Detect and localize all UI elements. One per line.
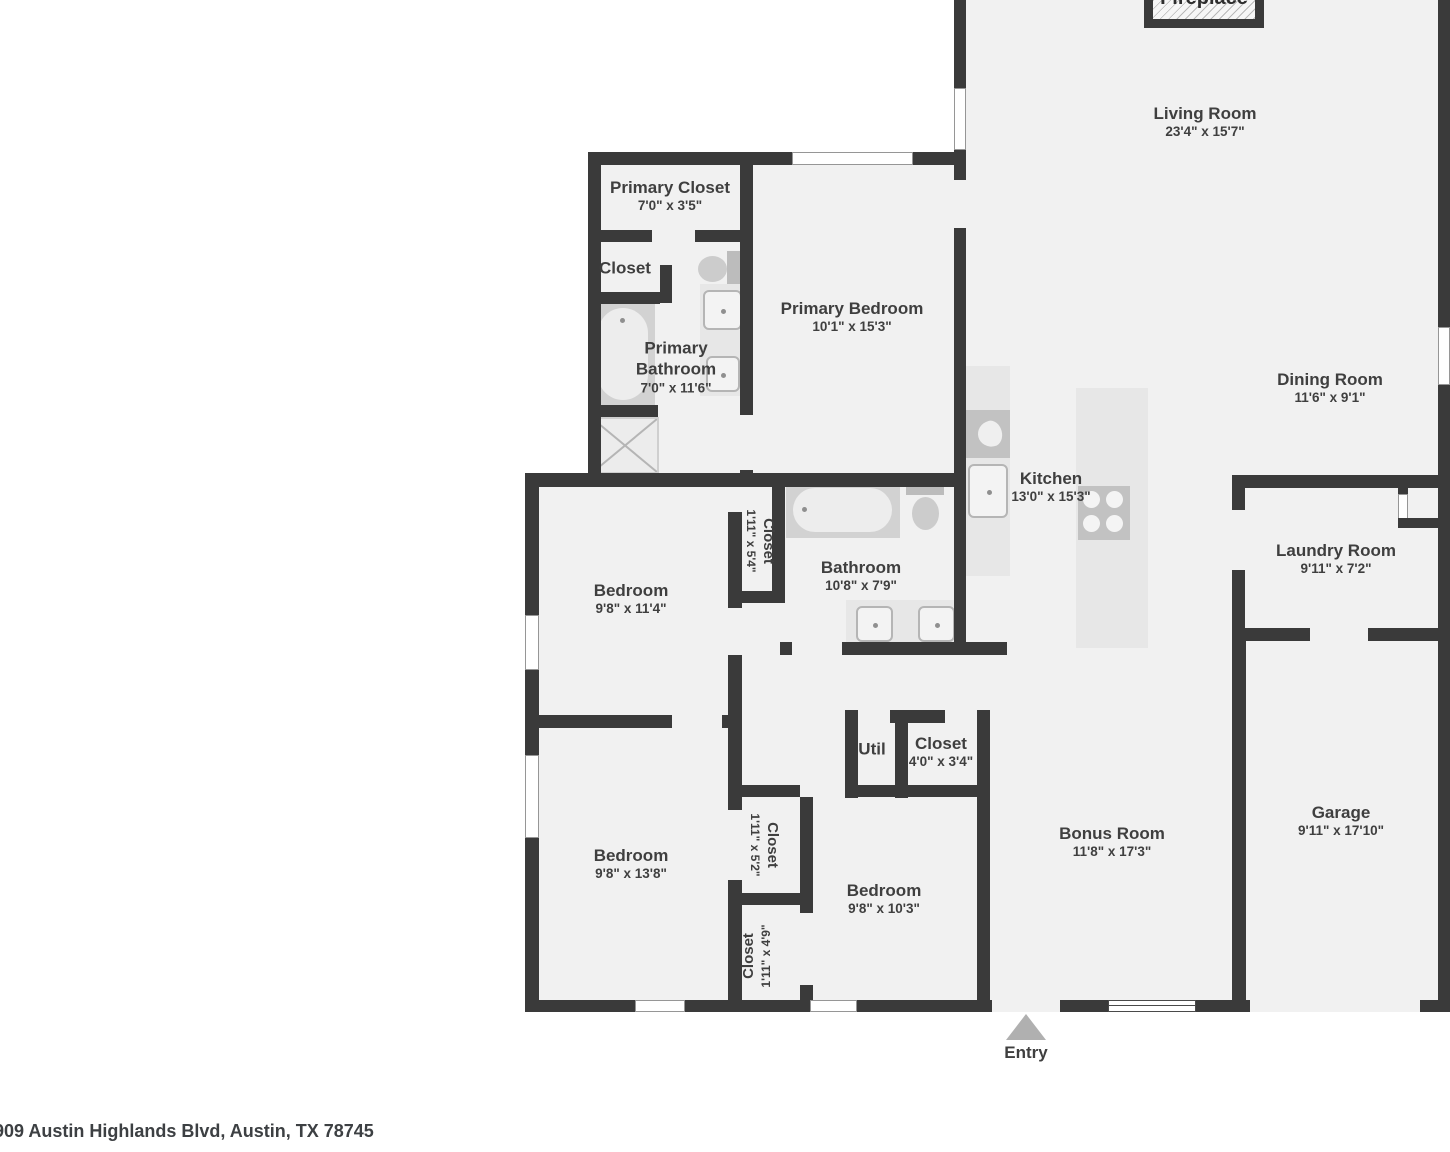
wall [525, 670, 539, 755]
room-label-kitchen: Kitchen 13'0" x 15'3" [1011, 468, 1090, 506]
room-name: Laundry Room [1276, 540, 1396, 561]
toilet-icon [912, 497, 939, 530]
wall [1060, 1000, 1108, 1012]
window [810, 1000, 857, 1012]
kitchen-sink-unit-icon [966, 410, 1010, 458]
window [525, 615, 539, 670]
wall [913, 152, 966, 165]
room-dims: 4'0" x 3'4" [909, 754, 973, 771]
room-name: Closet [909, 733, 973, 754]
room-label-primary-bathroom: Primary Bathroom 7'0" x 11'6" [616, 337, 736, 396]
wall [842, 642, 1007, 655]
room-dims: 11'6" x 9'1" [1277, 390, 1383, 407]
room-name: Bedroom [847, 880, 922, 901]
wall [954, 0, 966, 88]
wall [1420, 1000, 1450, 1012]
room-name: Primary Bedroom [781, 298, 924, 319]
wall [588, 230, 652, 242]
room-label-bedroom-2: Bedroom 9'8" x 13'8" [594, 845, 669, 883]
room-label-bedroom-3: Bedroom 9'8" x 10'3" [847, 880, 922, 918]
room-label-bathroom: Bathroom 10'8" x 7'9" [821, 557, 901, 595]
wall [857, 1000, 992, 1012]
kitchen-sink-basin-icon [975, 418, 1005, 449]
wall [728, 591, 785, 603]
room-label-closet-bedroom-2: Closet 1'11" x 5'2" [747, 813, 781, 876]
room-label-closet-primary-suite: Closet [599, 257, 651, 278]
room-label-bedroom-1: Bedroom 9'8" x 11'4" [594, 580, 669, 618]
room-dims: 7'0" x 11'6" [616, 380, 736, 397]
primary-vanity-sink-1-icon [703, 290, 742, 330]
window [1398, 494, 1408, 520]
wall [588, 152, 601, 487]
room-name: Bedroom [594, 845, 669, 866]
room-label-laundry-room: Laundry Room 9'11" x 7'2" [1276, 540, 1396, 578]
room-label-primary-bedroom: Primary Bedroom 10'1" x 15'3" [781, 298, 924, 336]
room-name: Garage [1298, 802, 1384, 823]
wall [525, 715, 672, 728]
primary-toilet-tank-icon [727, 251, 740, 284]
wall [722, 715, 742, 728]
floor-plan: Fireplace Living Room 23'4" x 15'7" Dini… [0, 0, 1450, 1152]
room-dims: 9'8" x 10'3" [847, 901, 922, 918]
room-label-util: Util [858, 738, 885, 759]
room-label-primary-closet: Primary Closet 7'0" x 3'5" [610, 177, 730, 215]
room-name: Primary Closet [610, 177, 730, 198]
room-name: Closet [762, 813, 781, 876]
wall [588, 405, 658, 417]
bath-vanity-sink-2-icon [918, 606, 955, 642]
wall [588, 292, 660, 304]
wall [1368, 628, 1450, 641]
room-dims: 10'1" x 15'3" [781, 319, 924, 336]
room-dims: 10'8" x 7'9" [821, 578, 901, 595]
wall [845, 785, 990, 797]
window [1438, 327, 1450, 385]
room-dims: 9'8" x 13'8" [594, 866, 669, 883]
room-dims: 9'8" x 11'4" [594, 601, 669, 618]
address: 909 Austin Highlands Blvd, Austin, TX 78… [0, 1121, 374, 1142]
wall [695, 230, 752, 242]
room-name: Dining Room [1277, 369, 1383, 390]
wall [525, 473, 966, 487]
room-name: Living Room [1154, 103, 1257, 124]
room-dims: 13'0" x 15'3" [1011, 489, 1090, 506]
wall [780, 642, 792, 655]
primary-toilet-icon [698, 256, 727, 282]
wall [660, 265, 672, 303]
room-label-living-room: Living Room 23'4" x 15'7" [1154, 103, 1257, 141]
room-dims: 9'11" x 17'10" [1298, 823, 1384, 840]
room-name: Util [858, 738, 885, 759]
wall [954, 228, 966, 655]
room-dims: 7'0" x 3'5" [610, 198, 730, 215]
wall [1232, 628, 1310, 641]
wall [740, 785, 800, 797]
room-name: Closet [758, 509, 777, 572]
room-label-closet-bedroom-3: Closet 1'11" x 4'9" [740, 924, 774, 987]
room-name: Primary Bathroom [616, 337, 736, 380]
room-name: Closet [599, 257, 651, 278]
window [792, 152, 913, 165]
room-label-closet-hall: Closet 4'0" x 3'4" [909, 733, 973, 771]
kitchen-sink-icon [968, 464, 1008, 518]
wall [982, 710, 990, 723]
room-label-bonus-room: Bonus Room 11'8" x 17'3" [1059, 823, 1165, 861]
room-dims: 9'11" x 7'2" [1276, 561, 1396, 578]
wall [525, 1000, 635, 1012]
shower-icon [591, 417, 659, 474]
room-name: Bonus Room [1059, 823, 1165, 844]
wall [740, 152, 753, 415]
room-label-garage: Garage 9'11" x 17'10" [1298, 802, 1384, 840]
bathtub-icon [786, 482, 900, 538]
bath-vanity-sink-1-icon [856, 606, 893, 642]
room-dims: 1'11" x 4'9" [759, 924, 774, 987]
wall [525, 473, 539, 615]
room-dims: 1'11" x 5'4" [743, 509, 758, 572]
wall [890, 710, 945, 723]
wall [1196, 1000, 1250, 1012]
wall [1438, 0, 1450, 327]
wall [1398, 518, 1450, 528]
window [954, 88, 966, 150]
room-dims: 1'11" x 5'2" [747, 813, 762, 876]
wall [525, 838, 539, 1012]
wall [1232, 475, 1450, 488]
entry-arrow-icon [1006, 1014, 1046, 1040]
room-dims: 23'4" x 15'7" [1154, 124, 1257, 141]
sliding-door [1108, 1000, 1196, 1012]
wall [845, 710, 857, 723]
window [525, 755, 539, 838]
room-name: Kitchen [1011, 468, 1090, 489]
wall [728, 728, 742, 810]
room-name: Bedroom [594, 580, 669, 601]
wall [1232, 641, 1246, 1012]
room-dims: 11'8" x 17'3" [1059, 844, 1165, 861]
wall [728, 893, 813, 905]
room-label-dining-room: Dining Room 11'6" x 9'1" [1277, 369, 1383, 407]
wall [977, 710, 990, 1012]
window [635, 1000, 685, 1012]
room-name: Bathroom [821, 557, 901, 578]
wall [588, 152, 792, 165]
wall [685, 1000, 810, 1012]
fireplace-label: Fireplace [1160, 0, 1248, 10]
room-label-closet-bedroom-1: Closet 1'11" x 5'4" [743, 509, 777, 572]
room-name: Closet [740, 924, 759, 987]
entry-label: Entry [1004, 1043, 1047, 1063]
